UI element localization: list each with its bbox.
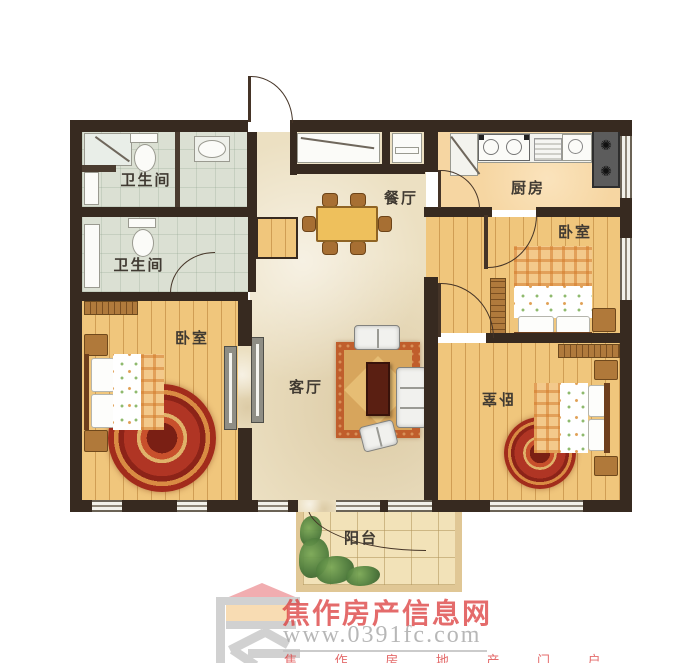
room-label-living: 客厅 bbox=[276, 379, 336, 397]
pillow bbox=[91, 358, 115, 392]
nightstand bbox=[84, 430, 108, 452]
window bbox=[258, 500, 288, 512]
panel-stripe bbox=[229, 353, 232, 423]
cushion-divider bbox=[400, 387, 425, 389]
bed-headboard bbox=[604, 383, 610, 453]
stove-burner bbox=[506, 139, 522, 155]
wall-bottom bbox=[432, 500, 490, 512]
room-label-dining: 餐厅 bbox=[371, 190, 431, 208]
coffee-table bbox=[366, 362, 390, 416]
closet-divider-wall bbox=[382, 132, 390, 165]
dining-chair bbox=[378, 216, 392, 232]
window bbox=[92, 500, 122, 512]
hall-closet bbox=[256, 217, 298, 259]
dining-chair bbox=[302, 216, 316, 232]
logo-left-bar bbox=[216, 597, 225, 663]
shower-stall bbox=[84, 133, 132, 166]
wall-between-bathrooms bbox=[82, 207, 257, 217]
toilet-bowl-bottom bbox=[132, 229, 154, 257]
sliding-door-panel bbox=[251, 337, 264, 423]
bed-right-top bbox=[514, 246, 592, 338]
fridge-fan-icon: ✺ bbox=[600, 137, 612, 153]
balcony-window bbox=[388, 500, 432, 512]
shoe-cabinet-shelf bbox=[395, 147, 419, 154]
sofa bbox=[396, 367, 427, 428]
pillow bbox=[91, 394, 115, 428]
bed-headboard bbox=[84, 354, 89, 430]
watermark-slogan: 焦 作 房 地 产 门 户 bbox=[284, 650, 618, 663]
wall-bottom bbox=[70, 500, 92, 512]
kitchen-window bbox=[620, 136, 632, 198]
bed-left bbox=[84, 354, 164, 430]
dining-chair bbox=[322, 241, 338, 255]
bathroom-divider-wall bbox=[175, 132, 180, 207]
stove-burner bbox=[483, 139, 499, 155]
window bbox=[177, 500, 207, 512]
panel-stripe bbox=[256, 344, 259, 416]
wall-between-right-bedrooms bbox=[486, 333, 632, 343]
cushion-divider bbox=[377, 329, 379, 348]
bed-blanket bbox=[514, 246, 592, 286]
entrance-door-arc bbox=[251, 76, 293, 123]
room-label-bedroom-right-top: 卧室 bbox=[545, 224, 605, 242]
wall-below-bathroom bbox=[82, 292, 248, 301]
room-label-balcony: 阳台 bbox=[331, 530, 391, 548]
hall-dining-living-floor bbox=[250, 132, 426, 500]
loveseat bbox=[354, 325, 400, 350]
sliding-door-opening-floor bbox=[238, 346, 252, 428]
bathroom-bottom-right-wall bbox=[248, 217, 256, 292]
sliding-door-panel bbox=[224, 346, 237, 430]
fridge-fan-icon: ✺ bbox=[600, 163, 612, 179]
wall-bottom bbox=[207, 500, 258, 512]
wall-bottom bbox=[380, 500, 388, 512]
wall-bedroom-left-lower bbox=[238, 428, 252, 500]
wall-living-bedroom bbox=[424, 277, 438, 500]
bedroom-window bbox=[620, 238, 632, 300]
bathroom-right-wall bbox=[247, 132, 257, 207]
watermark-site-url: www.0391fc.com bbox=[283, 622, 487, 652]
stove-knob bbox=[479, 135, 484, 140]
wall-under-kitchen bbox=[536, 207, 632, 217]
room-label-bedroom-left: 卧室 bbox=[162, 330, 222, 348]
sink-bowl bbox=[568, 139, 583, 154]
room-label-bedroom-right-bottom: 卧室 bbox=[467, 389, 527, 407]
bed-sheet bbox=[514, 286, 592, 318]
dining-chair bbox=[322, 193, 338, 207]
wall-top-right bbox=[290, 120, 632, 132]
wall-bedroom-left-upper bbox=[238, 300, 252, 346]
bed-sheet bbox=[560, 383, 588, 453]
stove-knob bbox=[524, 135, 529, 140]
bathroom-bottom-floor bbox=[82, 217, 248, 292]
closet-bottom-wall bbox=[290, 164, 425, 174]
shower-wall-stub bbox=[82, 165, 116, 172]
floor-plan-image: ✺ ✺ bbox=[0, 0, 700, 663]
bathroom-bottom-counter bbox=[84, 224, 100, 288]
nightstand bbox=[592, 308, 616, 332]
nightstand bbox=[594, 360, 618, 380]
room-label-kitchen: 厨房 bbox=[498, 180, 558, 198]
bathroom-top-counter bbox=[84, 172, 99, 205]
nightstand bbox=[84, 334, 108, 356]
sink-basin bbox=[198, 140, 226, 158]
wall-bottom bbox=[122, 500, 177, 512]
wall-left bbox=[70, 120, 82, 512]
kitchen-left-wall bbox=[424, 120, 438, 172]
wall-bottom bbox=[583, 500, 632, 512]
window bbox=[490, 500, 583, 512]
dish-drainer bbox=[534, 138, 562, 161]
bed-right-bottom bbox=[534, 383, 610, 453]
toilet-tank-top bbox=[130, 133, 158, 143]
room-label-bathroom-bottom: 卫生间 bbox=[109, 257, 169, 275]
cushion-divider bbox=[400, 407, 425, 409]
dresser bbox=[558, 344, 620, 358]
bed-sheet bbox=[113, 354, 141, 430]
refrigerator: ✺ ✺ bbox=[592, 130, 620, 188]
logo-orange-bar bbox=[226, 605, 288, 621]
nightstand bbox=[594, 456, 618, 476]
wall-bottom bbox=[288, 500, 298, 512]
bed-blanket bbox=[534, 383, 560, 453]
dining-chair bbox=[350, 193, 366, 207]
toilet-tank-bottom bbox=[128, 218, 156, 228]
dresser bbox=[84, 301, 138, 315]
cushion-divider bbox=[376, 427, 382, 447]
balcony-door-opening bbox=[298, 500, 336, 512]
bed-blanket bbox=[141, 354, 164, 430]
toilet-bowl-top bbox=[134, 144, 156, 172]
room-label-bathroom-top: 卫生间 bbox=[116, 172, 176, 190]
balcony-window bbox=[336, 500, 380, 512]
dining-table bbox=[316, 206, 378, 242]
dining-chair bbox=[350, 241, 366, 255]
wall-top-left bbox=[70, 120, 248, 132]
